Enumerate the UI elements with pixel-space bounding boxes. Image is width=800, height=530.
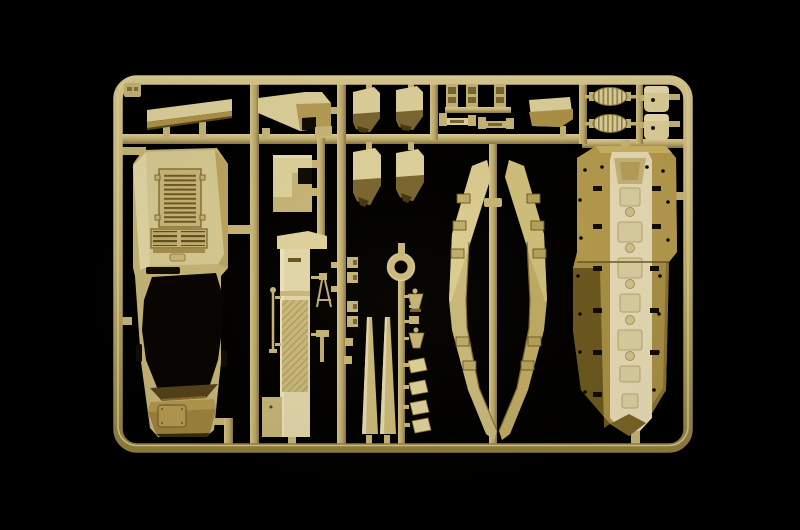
photo-stage [0,0,800,530]
vignette-overlay [0,0,800,530]
sprue-photo [0,0,800,530]
